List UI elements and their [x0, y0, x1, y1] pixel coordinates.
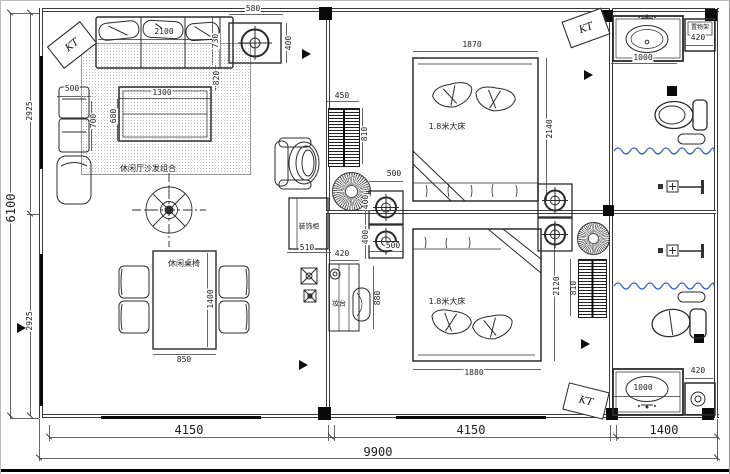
dim-line: [369, 181, 403, 182]
label-dressing-table: 妆台: [331, 301, 347, 308]
label-bed2: 1.8米大床: [428, 298, 467, 306]
dim-label-side-table-width: 500: [64, 85, 80, 93]
kt-label: KT: [578, 394, 594, 408]
window-left-top: [40, 56, 43, 169]
column: [702, 408, 714, 420]
dim-label-cabinet-width: 510: [299, 244, 315, 252]
dim-label-shelf-top: 420: [690, 34, 706, 42]
column: [319, 7, 332, 20]
water-line-top: [614, 148, 714, 154]
dim-line: [10, 13, 39, 14]
marker-triangle-icon: [299, 360, 308, 370]
dim-line: [369, 251, 403, 252]
dim-line: [614, 396, 680, 397]
window-left-bottom: [40, 254, 43, 406]
kt-label: KT: [63, 36, 81, 53]
label-dining-set: 休闲桌椅: [167, 260, 201, 268]
dim-line: [39, 419, 40, 461]
column: [606, 408, 618, 420]
dim-label-sofa-length: 2100: [153, 28, 174, 36]
ceiling-fan-bedroom2-icon: [577, 222, 610, 255]
kt-unit-top: KT: [561, 8, 610, 49]
dim-label-sofa-gap: 820: [213, 70, 221, 86]
dim-label-radiator1-height: 810: [361, 126, 369, 142]
dim-line: [413, 51, 538, 52]
column: [705, 9, 717, 21]
label-shelf-top: 置物架: [690, 25, 710, 31]
dim-label-bed1-width: 1870: [461, 41, 482, 49]
page-bottom-border: [1, 469, 730, 472]
dim-line: [229, 14, 283, 15]
window-bottom-bedroom: [396, 416, 546, 419]
dim-label-radiator2-height: 810: [570, 280, 578, 296]
dim-line: [685, 378, 713, 379]
marker-triangle-icon: [581, 339, 590, 349]
dim-label-spot-width-bottom: 500: [385, 242, 401, 250]
dim-label-left-total: 6100: [5, 193, 17, 224]
dim-label-ac-width: 580: [245, 5, 261, 13]
dim-label-bottom-total: 9900: [363, 446, 394, 458]
dressing-table: [329, 264, 370, 331]
dim-label-dresser-width: 420: [334, 250, 350, 258]
marker-triangle-icon: [584, 70, 593, 80]
dim-label-spot-width-top: 500: [386, 170, 402, 178]
dim-line: [327, 101, 359, 102]
dim-label-bed2-height: 2120: [553, 275, 561, 296]
dim-label-radiator-width: 450: [334, 92, 350, 100]
dim-label-bottom-mid: 4150: [456, 424, 487, 436]
shower-fixture-top-icon: [658, 180, 704, 194]
column: [694, 334, 704, 343]
dim-label-side-table-height: 700: [90, 113, 98, 129]
floor-plan-canvas: KT KT KT 580 400 2100 730 820 500 700 13…: [0, 0, 730, 474]
dim-line: [611, 63, 677, 64]
toilet-top-icon: [655, 100, 707, 144]
label-decor-cabinet: 装饰柜: [298, 224, 321, 231]
desk-chair: [275, 138, 319, 189]
dim-label-spot-height-1: 400: [362, 194, 370, 210]
dim-label-wash-top: 1000: [632, 54, 653, 62]
label-bed1: 1.8米大床: [428, 123, 467, 131]
living-room-rug: [81, 43, 251, 175]
dim-label-sofa-depth: 730: [212, 33, 220, 49]
dim-line: [287, 252, 331, 253]
label-sofa-group: 休闲厅沙发组合: [119, 165, 177, 173]
dim-label-ac-height: 400: [285, 35, 293, 51]
dim-line: [717, 419, 718, 461]
ceiling-light-icon: [132, 173, 206, 247]
radiator-bedroom1: [328, 108, 360, 167]
shower-fixture-bottom-icon: [658, 244, 704, 258]
dim-label-coffee-width: 1300: [151, 89, 172, 97]
window-bottom-living: [101, 416, 261, 419]
dim-label-bed2-width: 1880: [463, 369, 484, 377]
dim-label-dining-width: 850: [176, 356, 192, 364]
dim-line: [98, 39, 216, 40]
dim-label-wash-bottom: 1000: [632, 384, 653, 392]
wall-middle: [326, 210, 716, 214]
dim-label-bottom-right: 1400: [649, 424, 680, 436]
radiator-bedroom2: [578, 259, 607, 318]
dim-label-dresser-height: 880: [374, 290, 382, 306]
column: [603, 205, 614, 216]
dim-label-bottom-left: 4150: [174, 424, 205, 436]
dim-label-coffee-height: 680: [110, 108, 118, 124]
wall-top: [39, 8, 719, 12]
dim-line: [10, 418, 39, 419]
marker-triangle-icon: [302, 49, 311, 59]
column: [318, 407, 331, 420]
toilet-bottom-icon: [650, 292, 706, 339]
water-line-bottom: [614, 283, 714, 289]
dim-line: [329, 260, 359, 261]
wash-counter-bottom: [613, 369, 683, 415]
dim-line: [685, 45, 713, 46]
dim-label-spot-height-2: 400: [362, 229, 370, 245]
dim-label-left-top: 2925: [26, 100, 34, 121]
bed-2: [413, 229, 541, 361]
switch-symbols: [301, 268, 317, 302]
dim-label-shelf-bottom: 420: [690, 367, 706, 375]
dim-line: [610, 425, 611, 441]
dim-label-bed1-height: 2140: [546, 118, 554, 139]
kt-label: KT: [577, 20, 594, 35]
dim-label-dining-height: 1400: [207, 288, 215, 309]
column: [667, 86, 677, 96]
dim-label-left-bottom: 2925: [26, 310, 34, 331]
